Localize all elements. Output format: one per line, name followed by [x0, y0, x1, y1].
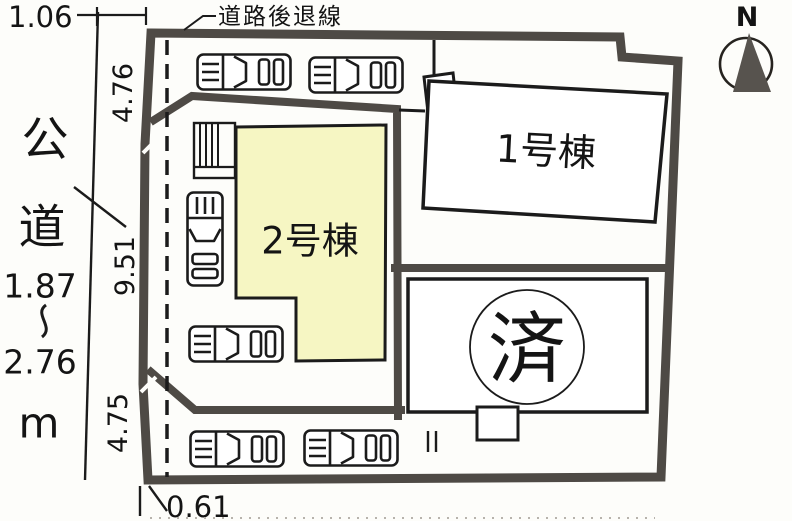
dimension-west-middle: 9.51 — [110, 236, 141, 296]
dimension-top-line — [77, 7, 147, 26]
building-1-label: 1号棟 — [495, 126, 597, 175]
compass-north-label: N — [736, 2, 759, 33]
car-icon — [310, 58, 403, 93]
road-name-char-2: 道 — [19, 201, 66, 256]
car-icon — [305, 431, 398, 466]
dimension-top-value: 1.06 — [8, 0, 73, 34]
road-break-slash — [74, 187, 126, 227]
divider-bottom-parking — [151, 372, 401, 410]
setback-label: 道路後退線 — [218, 4, 343, 30]
building-2-label: 2号棟 — [261, 220, 359, 263]
road-range-tilde — [42, 305, 47, 337]
sold-stamp-label: 済 — [488, 305, 566, 395]
site-plan-drawing: 1.06 道路後退線 4.76 9.51 4.75 公 道 1.87 2.76 … — [0, 0, 792, 521]
car-icon — [190, 327, 283, 362]
road-edge-line — [85, 12, 98, 480]
road-label-group: 公 道 1.87 2.76 m — [3, 113, 76, 448]
dimension-west-lower: 4.75 — [103, 393, 134, 453]
stairs-hatch-icon — [194, 123, 235, 178]
road-width-unit: m — [19, 399, 60, 448]
road-width-max: 2.76 — [3, 343, 76, 382]
car-icon — [188, 193, 223, 286]
site-plan: 1.06 道路後退線 4.76 9.51 4.75 公 道 1.87 2.76 … — [0, 0, 792, 521]
dimension-bottom-ticks — [140, 486, 167, 516]
lot-line-connector — [399, 110, 425, 111]
sold-building-porch — [477, 407, 518, 440]
car-icon — [198, 55, 291, 90]
sold-lot-steps — [428, 431, 436, 452]
compass-needle — [733, 33, 771, 92]
dimension-bottom-value: 0.61 — [166, 490, 231, 521]
car-icon — [191, 432, 284, 467]
sold-lot-building: 済 — [408, 279, 647, 452]
setback-label-group: 道路後退線 — [184, 4, 343, 30]
dimension-west-upper: 4.76 — [108, 63, 139, 123]
setback-leader-line — [184, 16, 216, 30]
road-name-char-1: 公 — [22, 113, 69, 168]
compass-icon: N — [720, 2, 772, 92]
road-width-min: 1.87 — [3, 267, 76, 306]
dimension-bottom: 0.61 — [140, 486, 231, 521]
dimension-top: 1.06 — [8, 0, 147, 34]
building-1: 1号棟 — [423, 73, 667, 222]
